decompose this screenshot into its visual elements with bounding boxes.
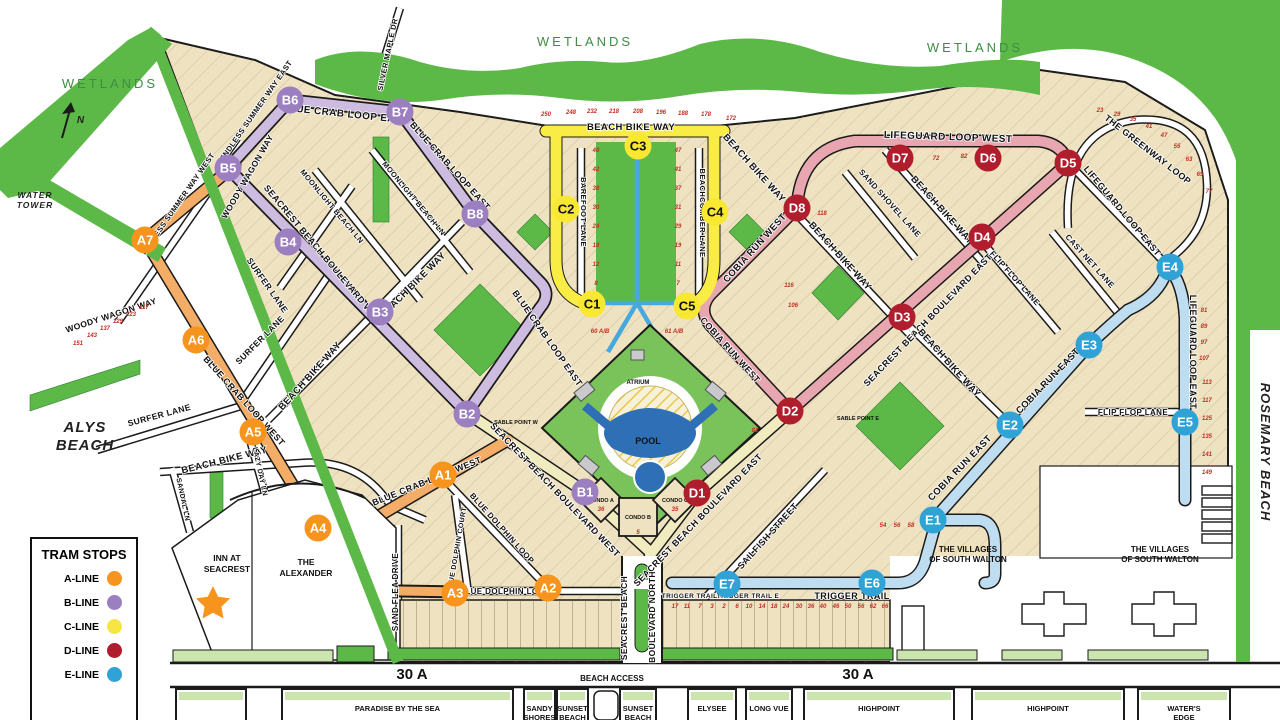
street-label: BEACH BIKE WAY bbox=[587, 122, 675, 133]
lot-number: 36 bbox=[808, 604, 815, 610]
place-label: OF SOUTH WALTON bbox=[1121, 555, 1199, 564]
street-label: BAREFOOT LANE bbox=[579, 177, 588, 247]
place-label: WETLANDS bbox=[62, 76, 158, 91]
lot-number: 36 bbox=[598, 507, 605, 513]
community-label: WATER'S bbox=[1167, 704, 1200, 713]
lot-number: 61 A/B bbox=[665, 329, 684, 335]
legend-item-b-line: B-LINE bbox=[32, 595, 122, 610]
lot-number: 54 bbox=[880, 523, 887, 529]
lot-number: 81 bbox=[752, 428, 759, 434]
communities-layer: PARADISE BY THE SEASANDYSHORESSUNSETBEAC… bbox=[176, 689, 1230, 720]
tram-stop-label-E1: E1 bbox=[925, 513, 941, 528]
community-label: BEACH bbox=[559, 713, 586, 720]
lot-number: 143 bbox=[87, 333, 98, 339]
place-label: THE VILLAGES bbox=[939, 545, 998, 554]
tram-stop-label-E4: E4 bbox=[1162, 260, 1179, 275]
lot-number: 42 bbox=[592, 167, 600, 173]
lot-number: 56 bbox=[894, 523, 901, 529]
lot-number: 30 bbox=[593, 205, 600, 211]
tram-stop-label-B3: B3 bbox=[372, 305, 389, 320]
lot-number: 125 bbox=[1202, 416, 1213, 422]
lot-number: 24 bbox=[592, 224, 600, 230]
lot-number: 117 bbox=[1202, 398, 1212, 404]
lot-number: 69 bbox=[1197, 172, 1204, 178]
community-label: SHORES bbox=[524, 713, 556, 720]
lot-number: 12 bbox=[593, 262, 600, 268]
legend-tram-stops: TRAM STOPS A-LINEB-LINEC-LINED-LINEE-LIN… bbox=[30, 537, 138, 720]
lot-number: 123 bbox=[126, 312, 137, 318]
community-green-bar bbox=[527, 692, 552, 700]
tram-stop-label-E3: E3 bbox=[1081, 338, 1097, 353]
lot-number: 188 bbox=[678, 111, 689, 117]
community-green-bar bbox=[1141, 692, 1227, 700]
legend-title: TRAM STOPS bbox=[32, 547, 136, 562]
community-green-bar bbox=[560, 692, 585, 700]
legend-item-label: C-LINE bbox=[64, 621, 99, 633]
place-label: CONDO B bbox=[625, 515, 651, 521]
community-label: SUNSET bbox=[623, 704, 654, 713]
legend-item-a-line: A-LINE bbox=[32, 571, 122, 586]
tram-stop-label-D3: D3 bbox=[894, 310, 911, 325]
lot-number: 41 bbox=[1145, 124, 1153, 130]
place-label: SABLE POINT E bbox=[837, 416, 880, 422]
tram-stop-label-C2: C2 bbox=[558, 202, 575, 217]
place-label: OF SOUTH WALTON bbox=[929, 555, 1007, 564]
lot-number: 47 bbox=[1160, 133, 1168, 139]
tram-stop-label-E6: E6 bbox=[864, 576, 880, 591]
lot-number: 135 bbox=[1202, 434, 1213, 440]
place-label: WETLANDS bbox=[537, 34, 633, 49]
lot-number: 113 bbox=[1202, 380, 1212, 386]
tram-stop-label-A7: A7 bbox=[137, 233, 154, 248]
tram-stop-label-E7: E7 bbox=[719, 577, 735, 592]
legend-item-e-line: E-LINE bbox=[32, 667, 122, 682]
tram-stop-label-C5: C5 bbox=[679, 299, 696, 314]
lot-number: 151 bbox=[73, 341, 84, 347]
lot-number: 41 bbox=[674, 167, 682, 173]
lot-number: 47 bbox=[674, 148, 682, 154]
tram-stop-label-B4: B4 bbox=[280, 235, 297, 250]
lot-number: 19 bbox=[675, 243, 682, 249]
legend-color-dot bbox=[107, 643, 122, 658]
community-green-bar bbox=[975, 692, 1121, 700]
lot-number: 208 bbox=[632, 109, 644, 115]
street-label: SEACREST BEACH bbox=[619, 576, 629, 660]
community-green-bar bbox=[691, 692, 733, 700]
place-label: INN AT bbox=[213, 553, 241, 563]
legend-color-dot bbox=[107, 571, 122, 586]
lot-number: 23 bbox=[1096, 108, 1104, 114]
place-label: ALEXANDER bbox=[280, 568, 333, 578]
tram-stop-label-E2: E2 bbox=[1002, 418, 1018, 433]
place-label: WATER bbox=[17, 190, 52, 200]
tram-stop-label-D5: D5 bbox=[1060, 156, 1077, 171]
lot-number: 11 bbox=[684, 604, 691, 610]
lot-number: 58 bbox=[908, 523, 915, 529]
legend-item-c-line: C-LINE bbox=[32, 619, 122, 634]
lot-number: 66 bbox=[882, 604, 889, 610]
community-label: PARADISE BY THE SEA bbox=[355, 704, 441, 713]
lot-number: 81 bbox=[1201, 308, 1208, 314]
lot-number: 250 bbox=[540, 112, 552, 118]
community-green-bar bbox=[749, 692, 789, 700]
lot-number: 62 bbox=[870, 604, 877, 610]
lot-number: 107 bbox=[1199, 356, 1210, 362]
legend-color-dot bbox=[107, 667, 122, 682]
lot-number: 118 bbox=[817, 211, 827, 217]
community-label: EDGE bbox=[1173, 713, 1194, 720]
lot-number: 218 bbox=[608, 109, 620, 115]
street-label: BOULEVARD NORTH bbox=[647, 571, 657, 663]
legend-item-label: B-LINE bbox=[64, 597, 99, 609]
tram-stop-label-D7: D7 bbox=[892, 151, 909, 166]
lot-number: 18 bbox=[771, 604, 778, 610]
place-label: 30 A bbox=[842, 666, 873, 683]
lot-number: 97 bbox=[1201, 340, 1208, 346]
tram-stop-label-A5: A5 bbox=[245, 425, 262, 440]
lot-number: 149 bbox=[1202, 470, 1213, 476]
place-label: SEACREST bbox=[204, 564, 251, 574]
tram-stop-label-A3: A3 bbox=[447, 586, 464, 601]
lot-number: 48 bbox=[592, 148, 600, 154]
lot-number: 17 bbox=[672, 604, 679, 610]
street-label: FLIP FLOP LANE bbox=[1098, 408, 1168, 417]
community-green-bar bbox=[179, 692, 243, 700]
community-label: HIGHPOINT bbox=[858, 704, 900, 713]
lot-number: 56 bbox=[858, 604, 865, 610]
tram-stop-label-A4: A4 bbox=[310, 521, 327, 536]
tram-stop-label-D4: D4 bbox=[974, 230, 991, 245]
lot-number: 50 bbox=[845, 604, 852, 610]
lot-number: 137 bbox=[100, 326, 111, 332]
legend-color-dot bbox=[107, 595, 122, 610]
lot-number: 37 bbox=[675, 186, 682, 192]
community-label: ELYSEE bbox=[698, 704, 727, 713]
lot-number: 10 bbox=[746, 604, 753, 610]
lot-number: 82 bbox=[961, 154, 968, 160]
tram-stop-label-B2: B2 bbox=[459, 407, 476, 422]
lot-number: 55 bbox=[1174, 144, 1181, 150]
lot-number: 38 bbox=[593, 186, 600, 192]
lot-number: 117 bbox=[139, 305, 149, 311]
street-label: SAND FLEA DRIVE bbox=[391, 553, 400, 631]
community-label: BEACH bbox=[625, 713, 652, 720]
place-label: ALYS bbox=[63, 419, 107, 436]
resort-map: { "title":"Seacrest Beach community tram… bbox=[0, 0, 1280, 720]
lot-number: 248 bbox=[565, 110, 577, 116]
lot-number: 106 bbox=[788, 303, 799, 309]
place-label: SABLE POINT W bbox=[494, 420, 539, 426]
lot-number: 116 bbox=[784, 283, 794, 289]
lot-number: 172 bbox=[726, 116, 737, 122]
lot-number: 31 bbox=[675, 205, 682, 211]
tram-stop-label-B5: B5 bbox=[220, 161, 237, 176]
lot-number: 18 bbox=[593, 243, 600, 249]
tram-stop-label-E5: E5 bbox=[1177, 415, 1193, 430]
place-label: THE bbox=[298, 557, 315, 567]
lot-number: 178 bbox=[701, 112, 712, 118]
place-label: 30 A bbox=[396, 666, 427, 683]
lot-number: 60 A/B bbox=[591, 329, 610, 335]
lot-number: 2 bbox=[721, 604, 726, 610]
community-green-bar bbox=[807, 692, 951, 700]
place-label: BEACH bbox=[56, 437, 115, 454]
tram-stop-label-D2: D2 bbox=[782, 404, 799, 419]
lot-number: 14 bbox=[759, 604, 766, 610]
lot-number: 141 bbox=[1202, 452, 1213, 458]
place-label: WETLANDS bbox=[927, 40, 1023, 55]
lot-number: 35 bbox=[672, 507, 679, 513]
place-label: TOWER bbox=[17, 200, 53, 210]
tram-stop-label-B6: B6 bbox=[282, 93, 299, 108]
tram-stop-label-D8: D8 bbox=[789, 201, 806, 216]
lot-number: 72 bbox=[933, 156, 940, 162]
tram-stop-label-D6: D6 bbox=[980, 151, 997, 166]
lot-number: 129 bbox=[113, 319, 124, 325]
legend-item-label: D-LINE bbox=[64, 645, 99, 657]
lot-number: 46 bbox=[832, 604, 840, 610]
lot-number: 29 bbox=[1113, 112, 1121, 118]
place-label: CONDO C bbox=[662, 498, 688, 504]
community-green-bar bbox=[623, 692, 653, 700]
tram-stop-label-A2: A2 bbox=[540, 581, 557, 596]
community-label: LONG VUE bbox=[749, 704, 788, 713]
tram-stop-label-B1: B1 bbox=[577, 485, 594, 500]
place-label: ROSEMARY BEACH bbox=[1258, 383, 1273, 521]
tram-stop-label-B7: B7 bbox=[392, 105, 409, 120]
map-canvas: BLUE CRAB LOOP EASTBLUE CRAB LOOP EASTBL… bbox=[0, 0, 1280, 720]
lot-number: 89 bbox=[1201, 324, 1208, 330]
lot-number: 35 bbox=[1130, 117, 1137, 123]
street-label: LIFEGUARD LOOP EAST bbox=[1188, 295, 1198, 410]
place-label: POOL bbox=[635, 436, 661, 446]
place-label: N bbox=[77, 115, 85, 126]
legend-color-dot bbox=[107, 619, 122, 634]
legend-item-label: E-LINE bbox=[65, 669, 99, 681]
tram-stop-label-A1: A1 bbox=[435, 468, 452, 483]
street-label: WOODY WAGON WAY bbox=[64, 296, 158, 335]
tram-stop-label-C3: C3 bbox=[630, 139, 647, 154]
lot-number: 30 bbox=[796, 604, 803, 610]
community-green-bar bbox=[285, 692, 510, 700]
place-label: THE VILLAGES bbox=[1131, 545, 1190, 554]
tram-stop-label-C1: C1 bbox=[584, 297, 601, 312]
lot-number: 40 bbox=[819, 604, 827, 610]
legend-item-label: A-LINE bbox=[64, 573, 99, 585]
lot-number: 24 bbox=[782, 604, 790, 610]
community-label: SANDY bbox=[526, 704, 552, 713]
lot-number: 232 bbox=[586, 109, 598, 115]
lot-number: 29 bbox=[674, 224, 682, 230]
community-label: SUNSET bbox=[557, 704, 588, 713]
tram-stop-label-B8: B8 bbox=[467, 207, 484, 222]
tram-stop-label-D1: D1 bbox=[689, 486, 706, 501]
lot-number: 77 bbox=[1206, 189, 1213, 195]
tram-stop-label-A6: A6 bbox=[188, 333, 205, 348]
legend-item-d-line: D-LINE bbox=[32, 643, 122, 658]
place-label: ATRIUM bbox=[627, 380, 650, 386]
community-label: HIGHPOINT bbox=[1027, 704, 1069, 713]
lot-number: 11 bbox=[675, 262, 682, 268]
lot-number: 63 bbox=[1186, 157, 1193, 163]
tram-stop-label-C4: C4 bbox=[707, 205, 724, 220]
place-label: BEACH ACCESS bbox=[580, 674, 644, 683]
lot-number: 196 bbox=[656, 110, 667, 116]
